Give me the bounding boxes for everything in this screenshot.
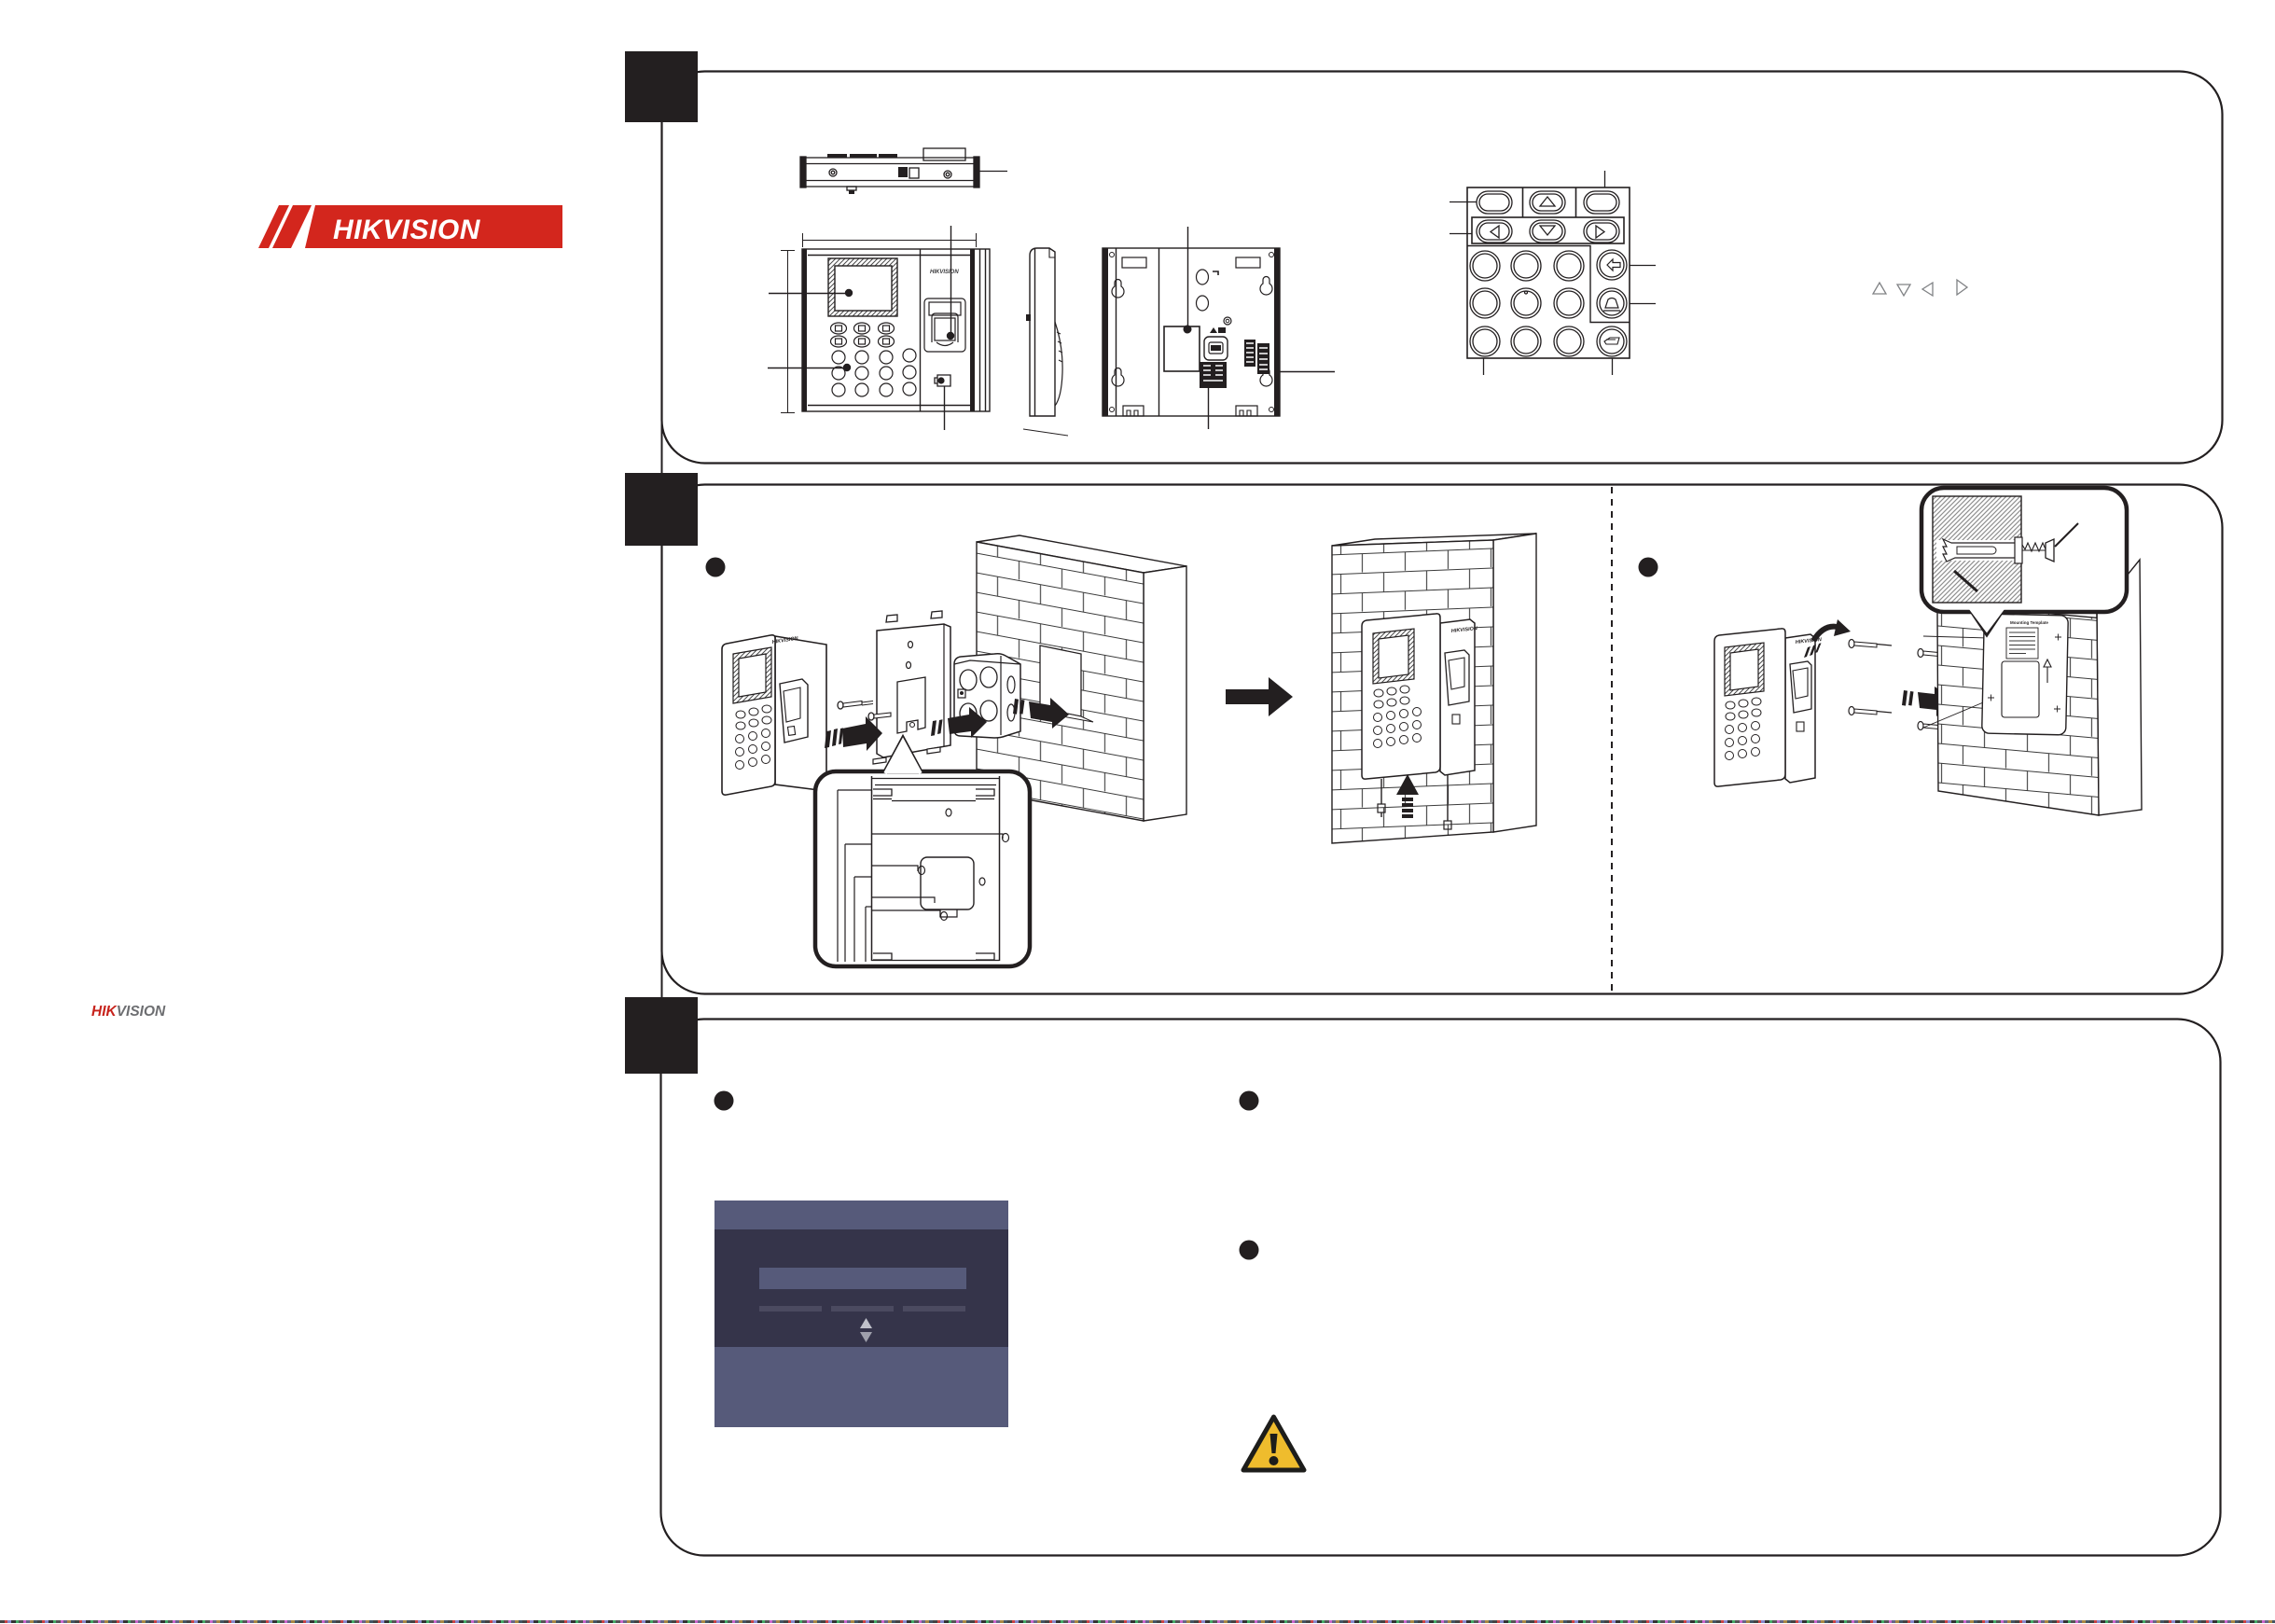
svg-text:HIKVISION: HIKVISION [91, 1004, 166, 1020]
svg-text:HIKVISION: HIKVISION [333, 215, 481, 245]
svg-text:Mounting Template: Mounting Template [2010, 620, 2048, 625]
svg-text:HIKVISION: HIKVISION [930, 270, 959, 275]
